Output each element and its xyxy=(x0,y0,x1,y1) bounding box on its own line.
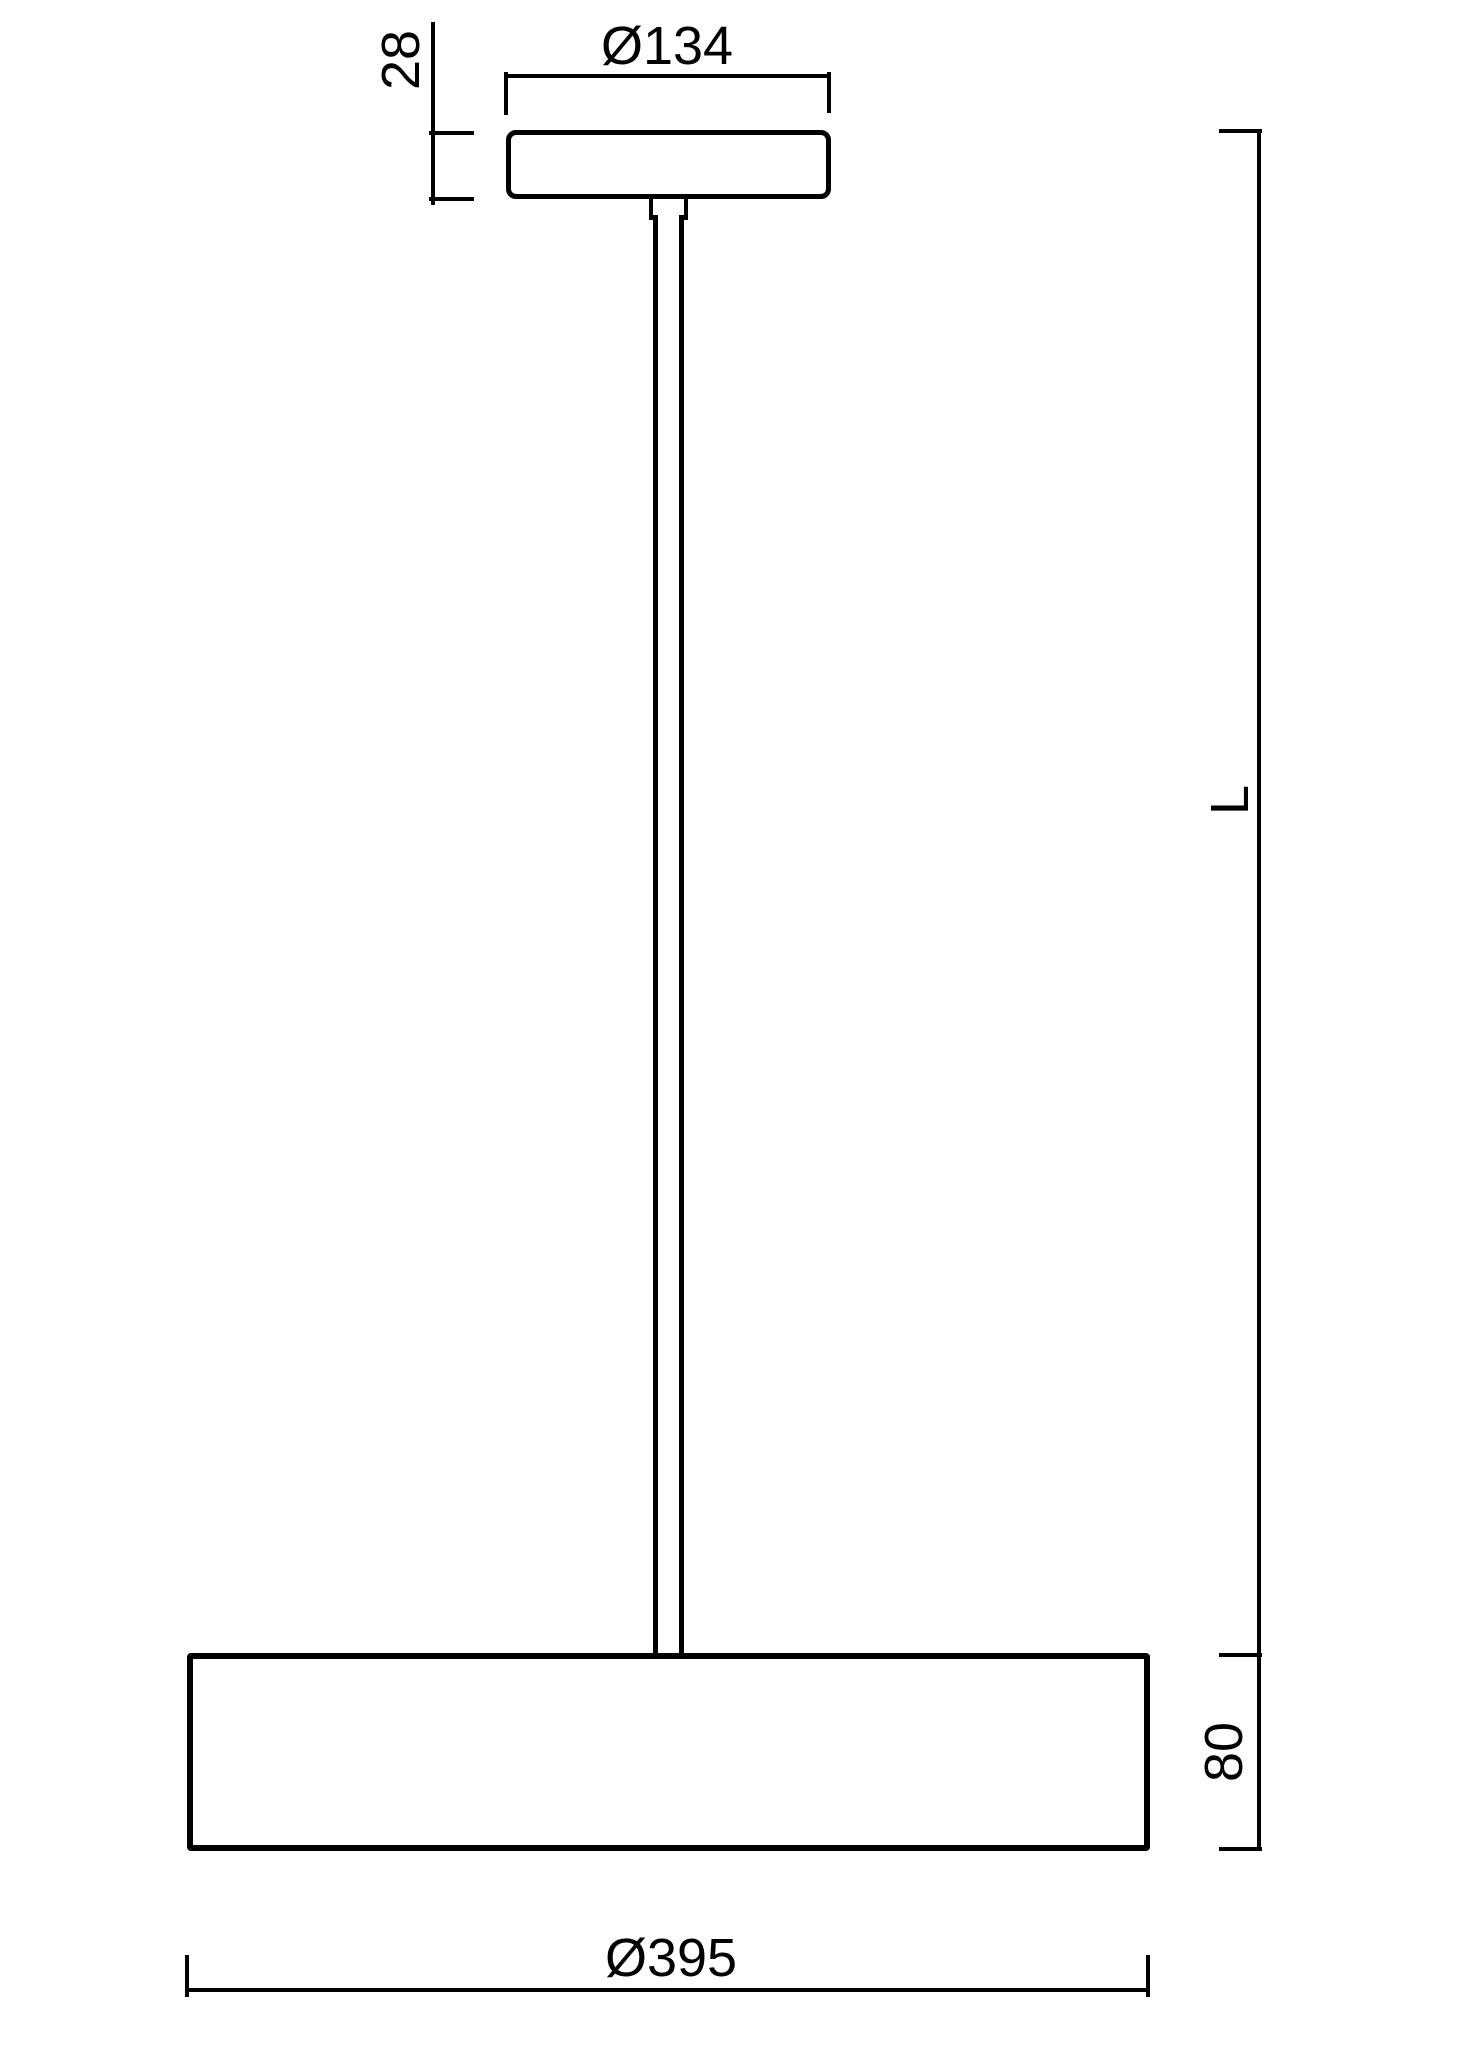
ceiling-canopy xyxy=(506,130,831,199)
dim-shade-diameter-tick-left xyxy=(185,1955,189,1997)
dim-shade-diameter-line xyxy=(187,1988,1150,1992)
lamp-shade xyxy=(187,1653,1150,1851)
dim-canopy-height-line xyxy=(431,22,435,205)
dim-canopy-height-label: 28 xyxy=(374,30,428,90)
dim-overall-length-line xyxy=(1257,131,1261,1851)
dim-shade-diameter-tick-right xyxy=(1146,1955,1150,1997)
dim-canopy-diameter-tick-left xyxy=(504,72,508,115)
dim-shade-height-label: 80 xyxy=(1197,1722,1251,1782)
dim-shade-height-tick-top xyxy=(1219,1653,1262,1657)
dim-canopy-height-tick-bottom xyxy=(429,197,474,201)
technical-drawing-canvas: 28 Ø134 L 80 Ø395 xyxy=(0,0,1458,2063)
suspension-rod xyxy=(653,215,684,1655)
dim-canopy-diameter-label: Ø134 xyxy=(601,19,733,73)
dim-shade-height-tick-bottom xyxy=(1219,1847,1262,1851)
dim-canopy-diameter-tick-right xyxy=(827,72,831,113)
dim-overall-length-label: L xyxy=(1203,785,1257,815)
dim-shade-diameter-label: Ø395 xyxy=(605,1931,737,1985)
dim-canopy-height-tick-top xyxy=(429,131,474,135)
dim-overall-length-tick-top xyxy=(1219,129,1262,133)
